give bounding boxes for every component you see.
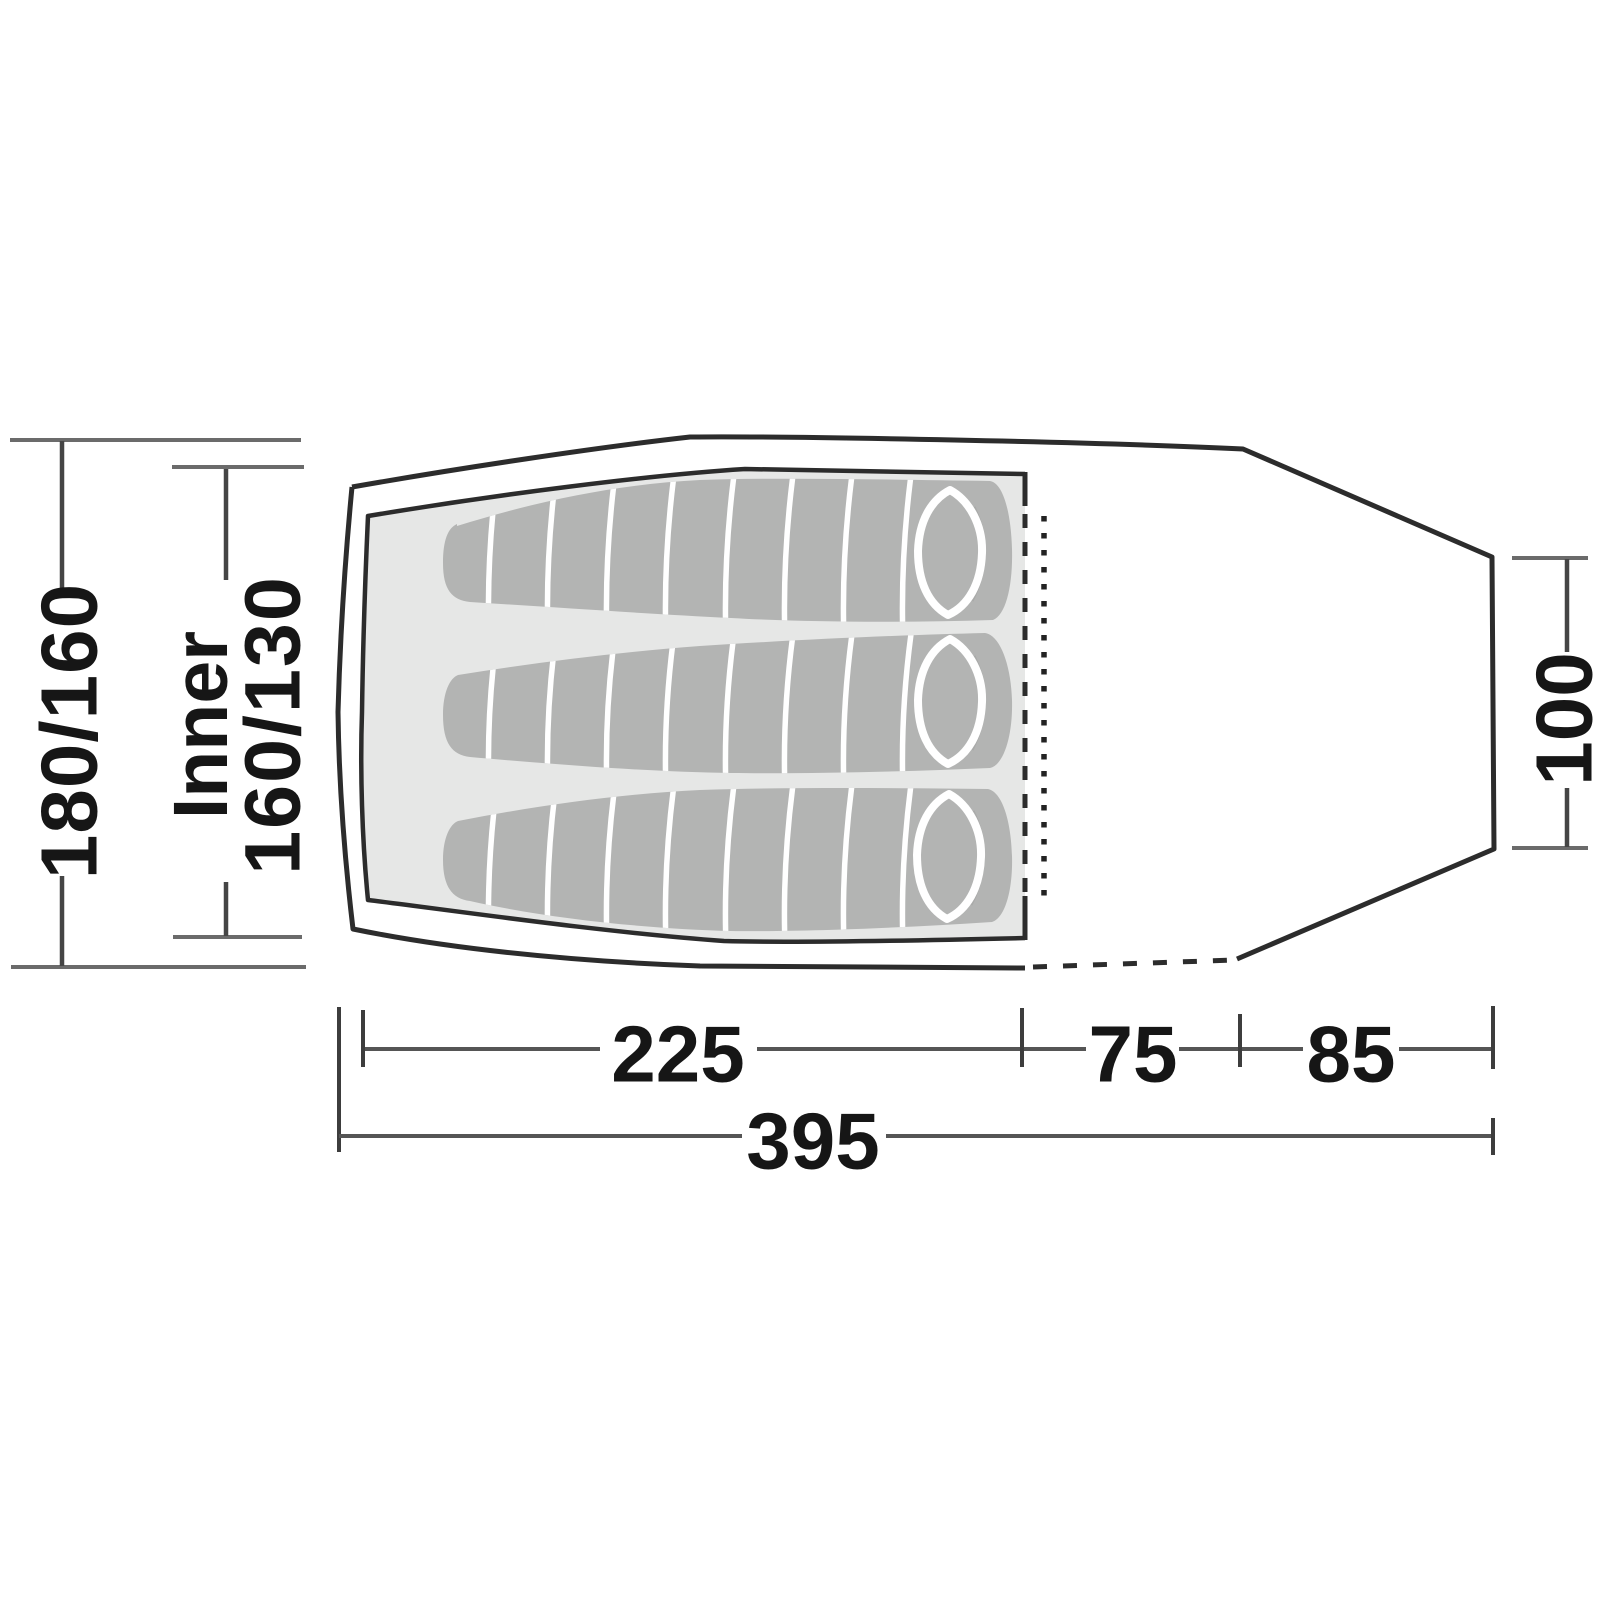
svg-text:160/130: 160/130 — [228, 575, 317, 875]
svg-text:225: 225 — [611, 1010, 744, 1099]
svg-text:395: 395 — [746, 1097, 879, 1186]
svg-text:180/160: 180/160 — [25, 583, 114, 879]
svg-text:85: 85 — [1307, 1010, 1396, 1099]
svg-text:100: 100 — [1520, 652, 1600, 785]
svg-text:75: 75 — [1089, 1010, 1178, 1099]
